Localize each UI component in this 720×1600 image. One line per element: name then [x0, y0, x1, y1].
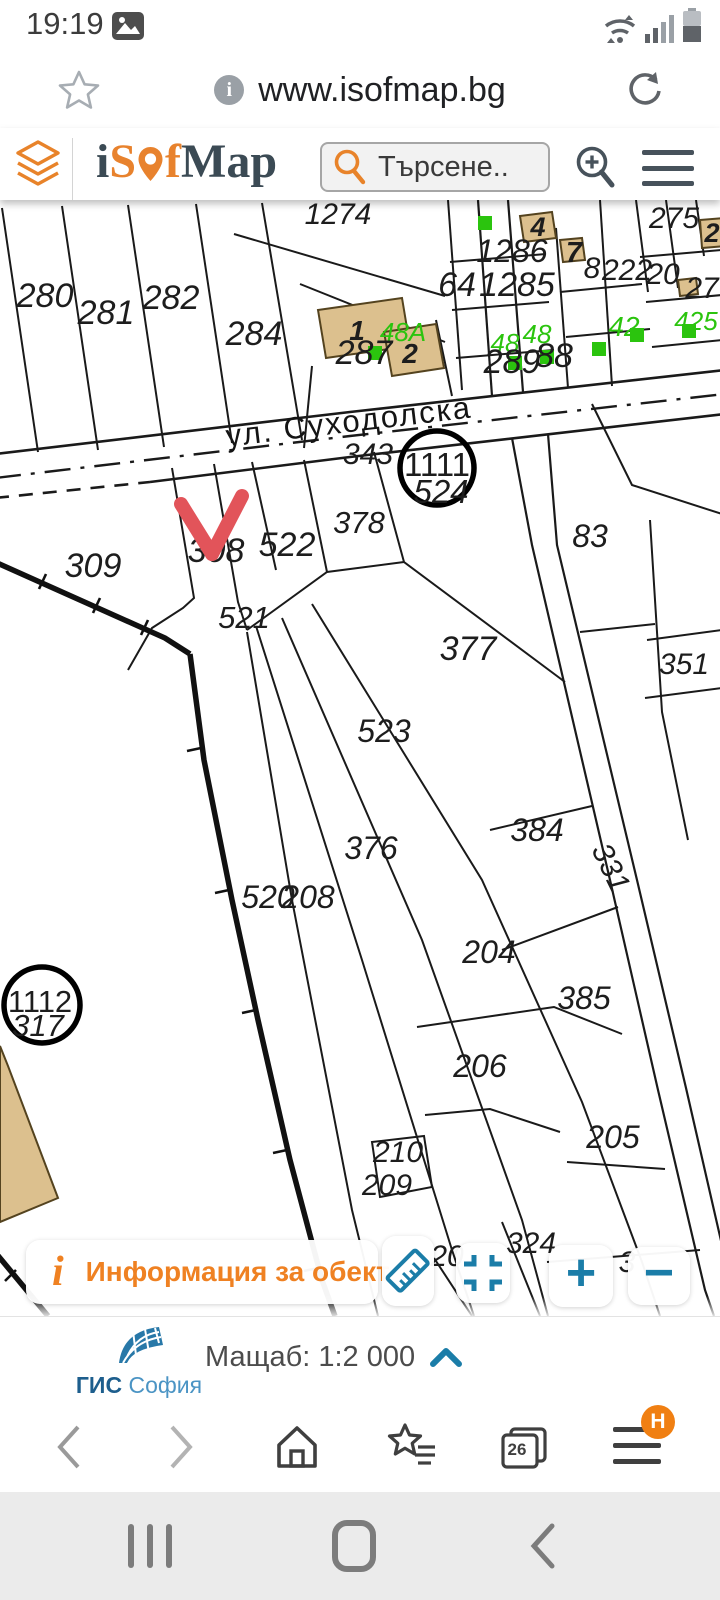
browser-back-button[interactable] — [24, 1402, 114, 1492]
plus-icon: + — [566, 1247, 596, 1299]
parcel-label: 281 — [77, 294, 135, 332]
parcel-label: 20 — [645, 258, 680, 291]
object-info-button[interactable]: i Информация за обект — [26, 1240, 378, 1304]
gis-label: ГИС — [76, 1372, 122, 1398]
minus-icon: − — [644, 1247, 674, 1299]
status-icons — [602, 8, 702, 44]
browser-tabs-button[interactable]: 26 — [478, 1402, 568, 1492]
parcel-label: 206 — [452, 1048, 507, 1084]
menu-icon[interactable] — [642, 144, 694, 192]
parcel-label: 208 — [280, 879, 335, 915]
cadastral-map[interactable]: ул. Суходолска 1274280281282284275421286… — [0, 200, 720, 1316]
isofmap-header: iS fMap Търсене.. — [0, 128, 720, 200]
search-icon — [332, 148, 368, 186]
parcel-label: 8 — [584, 252, 601, 285]
parcel-label: 385 — [557, 980, 611, 1016]
browser-toolbar: 26 H — [0, 1402, 720, 1492]
isofmap-logo[interactable]: iS fMap — [96, 136, 277, 188]
parcel-label: 1274 — [305, 200, 372, 231]
browser-bookmarks-button[interactable] — [368, 1402, 458, 1492]
measure-button[interactable] — [382, 1236, 434, 1306]
logo-s: S — [109, 136, 136, 188]
parcel-label: 309 — [65, 547, 122, 585]
clock: 19:19 — [26, 6, 104, 42]
chevron-up-icon[interactable] — [428, 1345, 464, 1369]
url-field[interactable]: i www.isofmap.bg — [0, 52, 720, 128]
url-text: www.isofmap.bg — [258, 71, 506, 110]
browser-home-button[interactable] — [252, 1402, 342, 1492]
parcel-label: 204 — [461, 934, 515, 970]
parcel-label: 376 — [344, 830, 398, 866]
tab-count: 26 — [508, 1440, 527, 1460]
parcel-label: 287 — [335, 334, 394, 372]
logo-map: Map — [181, 136, 277, 188]
logo-i: i — [96, 136, 109, 188]
info-icon: i — [52, 1252, 64, 1292]
gis-sofia-logo[interactable]: ГИС София — [74, 1323, 204, 1399]
parcel-label: 88 — [535, 337, 573, 375]
expand-corners-icon — [461, 1252, 505, 1294]
site-info-icon[interactable]: i — [214, 75, 244, 105]
menu-notification-badge: H — [641, 1405, 675, 1439]
back-button[interactable] — [528, 1522, 558, 1570]
ruler-icon — [376, 1239, 440, 1303]
refresh-icon[interactable] — [622, 68, 668, 114]
parcel-label: 522 — [259, 526, 316, 564]
parcel-label: 378 — [333, 505, 385, 540]
parcel-label: 1285 — [479, 266, 555, 304]
browser-address-bar: i www.isofmap.bg — [0, 52, 720, 129]
parcel-label: 289 — [483, 343, 541, 381]
parcel-label: 2 — [703, 218, 719, 248]
parcel-label: 222 — [601, 254, 652, 287]
scale-footer: ГИС София Мащаб: 1:2 000 — [0, 1316, 720, 1403]
parcel-label: 282 — [142, 279, 200, 317]
parcel-label: 209 — [361, 1169, 412, 1202]
fullscreen-button[interactable] — [456, 1243, 510, 1303]
parcel-label: 7 — [566, 237, 584, 269]
parcel-label: 1286 — [476, 233, 547, 269]
scale-label: Мащаб: 1:2 000 — [205, 1341, 415, 1374]
logo-f: f — [165, 136, 181, 188]
parcel-label: 27 — [684, 272, 720, 305]
android-navigation-bar — [0, 1492, 720, 1600]
screenshot-notification-icon — [112, 12, 144, 40]
header-divider — [72, 138, 73, 200]
zoom-in-magnifier-icon[interactable] — [568, 140, 624, 196]
parcel-label: 2 — [401, 338, 418, 369]
parcel-label: 284 — [225, 315, 283, 353]
parcel-label: 210 — [372, 1136, 423, 1169]
browser-forward-button[interactable] — [136, 1402, 226, 1492]
status-bar: 19:19 — [0, 0, 720, 52]
parcel-label: 521 — [218, 600, 270, 635]
parcel-label: 317 — [12, 1008, 65, 1043]
parcel-label: 425 — [674, 306, 718, 336]
parcel-label: 42 — [608, 311, 640, 342]
parcel-label: 384 — [510, 812, 563, 848]
parcel-label: 343 — [343, 438, 393, 471]
map-canvas[interactable]: ул. Суходолска 1274280281282284275421286… — [0, 200, 720, 1316]
layers-icon[interactable] — [10, 136, 66, 192]
parcel-label: 275 — [648, 202, 699, 235]
green-point-marker — [478, 216, 492, 230]
parcel-label: 523 — [357, 713, 411, 749]
green-point-marker — [592, 342, 606, 356]
battery-icon — [682, 8, 702, 44]
zoom-out-button[interactable]: − — [628, 1247, 690, 1305]
recents-button[interactable] — [128, 1524, 172, 1568]
parcel-label: 377 — [440, 630, 498, 668]
parcel-label: 205 — [585, 1119, 640, 1155]
search-placeholder: Търсене.. — [378, 151, 509, 184]
wifi-icon — [602, 14, 638, 44]
map-pin-icon — [137, 142, 164, 180]
zoom-in-button[interactable]: + — [549, 1245, 613, 1307]
parcel-label: 64 — [438, 266, 476, 304]
gis-sofia-dome-icon — [113, 1323, 165, 1365]
parcel-label: 351 — [659, 648, 709, 681]
parcel-label: 83 — [572, 518, 608, 554]
sofia-label: София — [122, 1372, 202, 1398]
browser-menu-button[interactable]: H — [592, 1402, 682, 1492]
object-info-label: Информация за обект — [86, 1256, 390, 1288]
home-button[interactable] — [332, 1520, 376, 1572]
parcel-label: 524 — [413, 473, 468, 510]
district-boundary — [0, 562, 335, 1316]
signal-icon — [645, 12, 675, 44]
parcel-label: 280 — [16, 277, 74, 315]
search-input[interactable]: Търсене.. — [320, 142, 550, 192]
